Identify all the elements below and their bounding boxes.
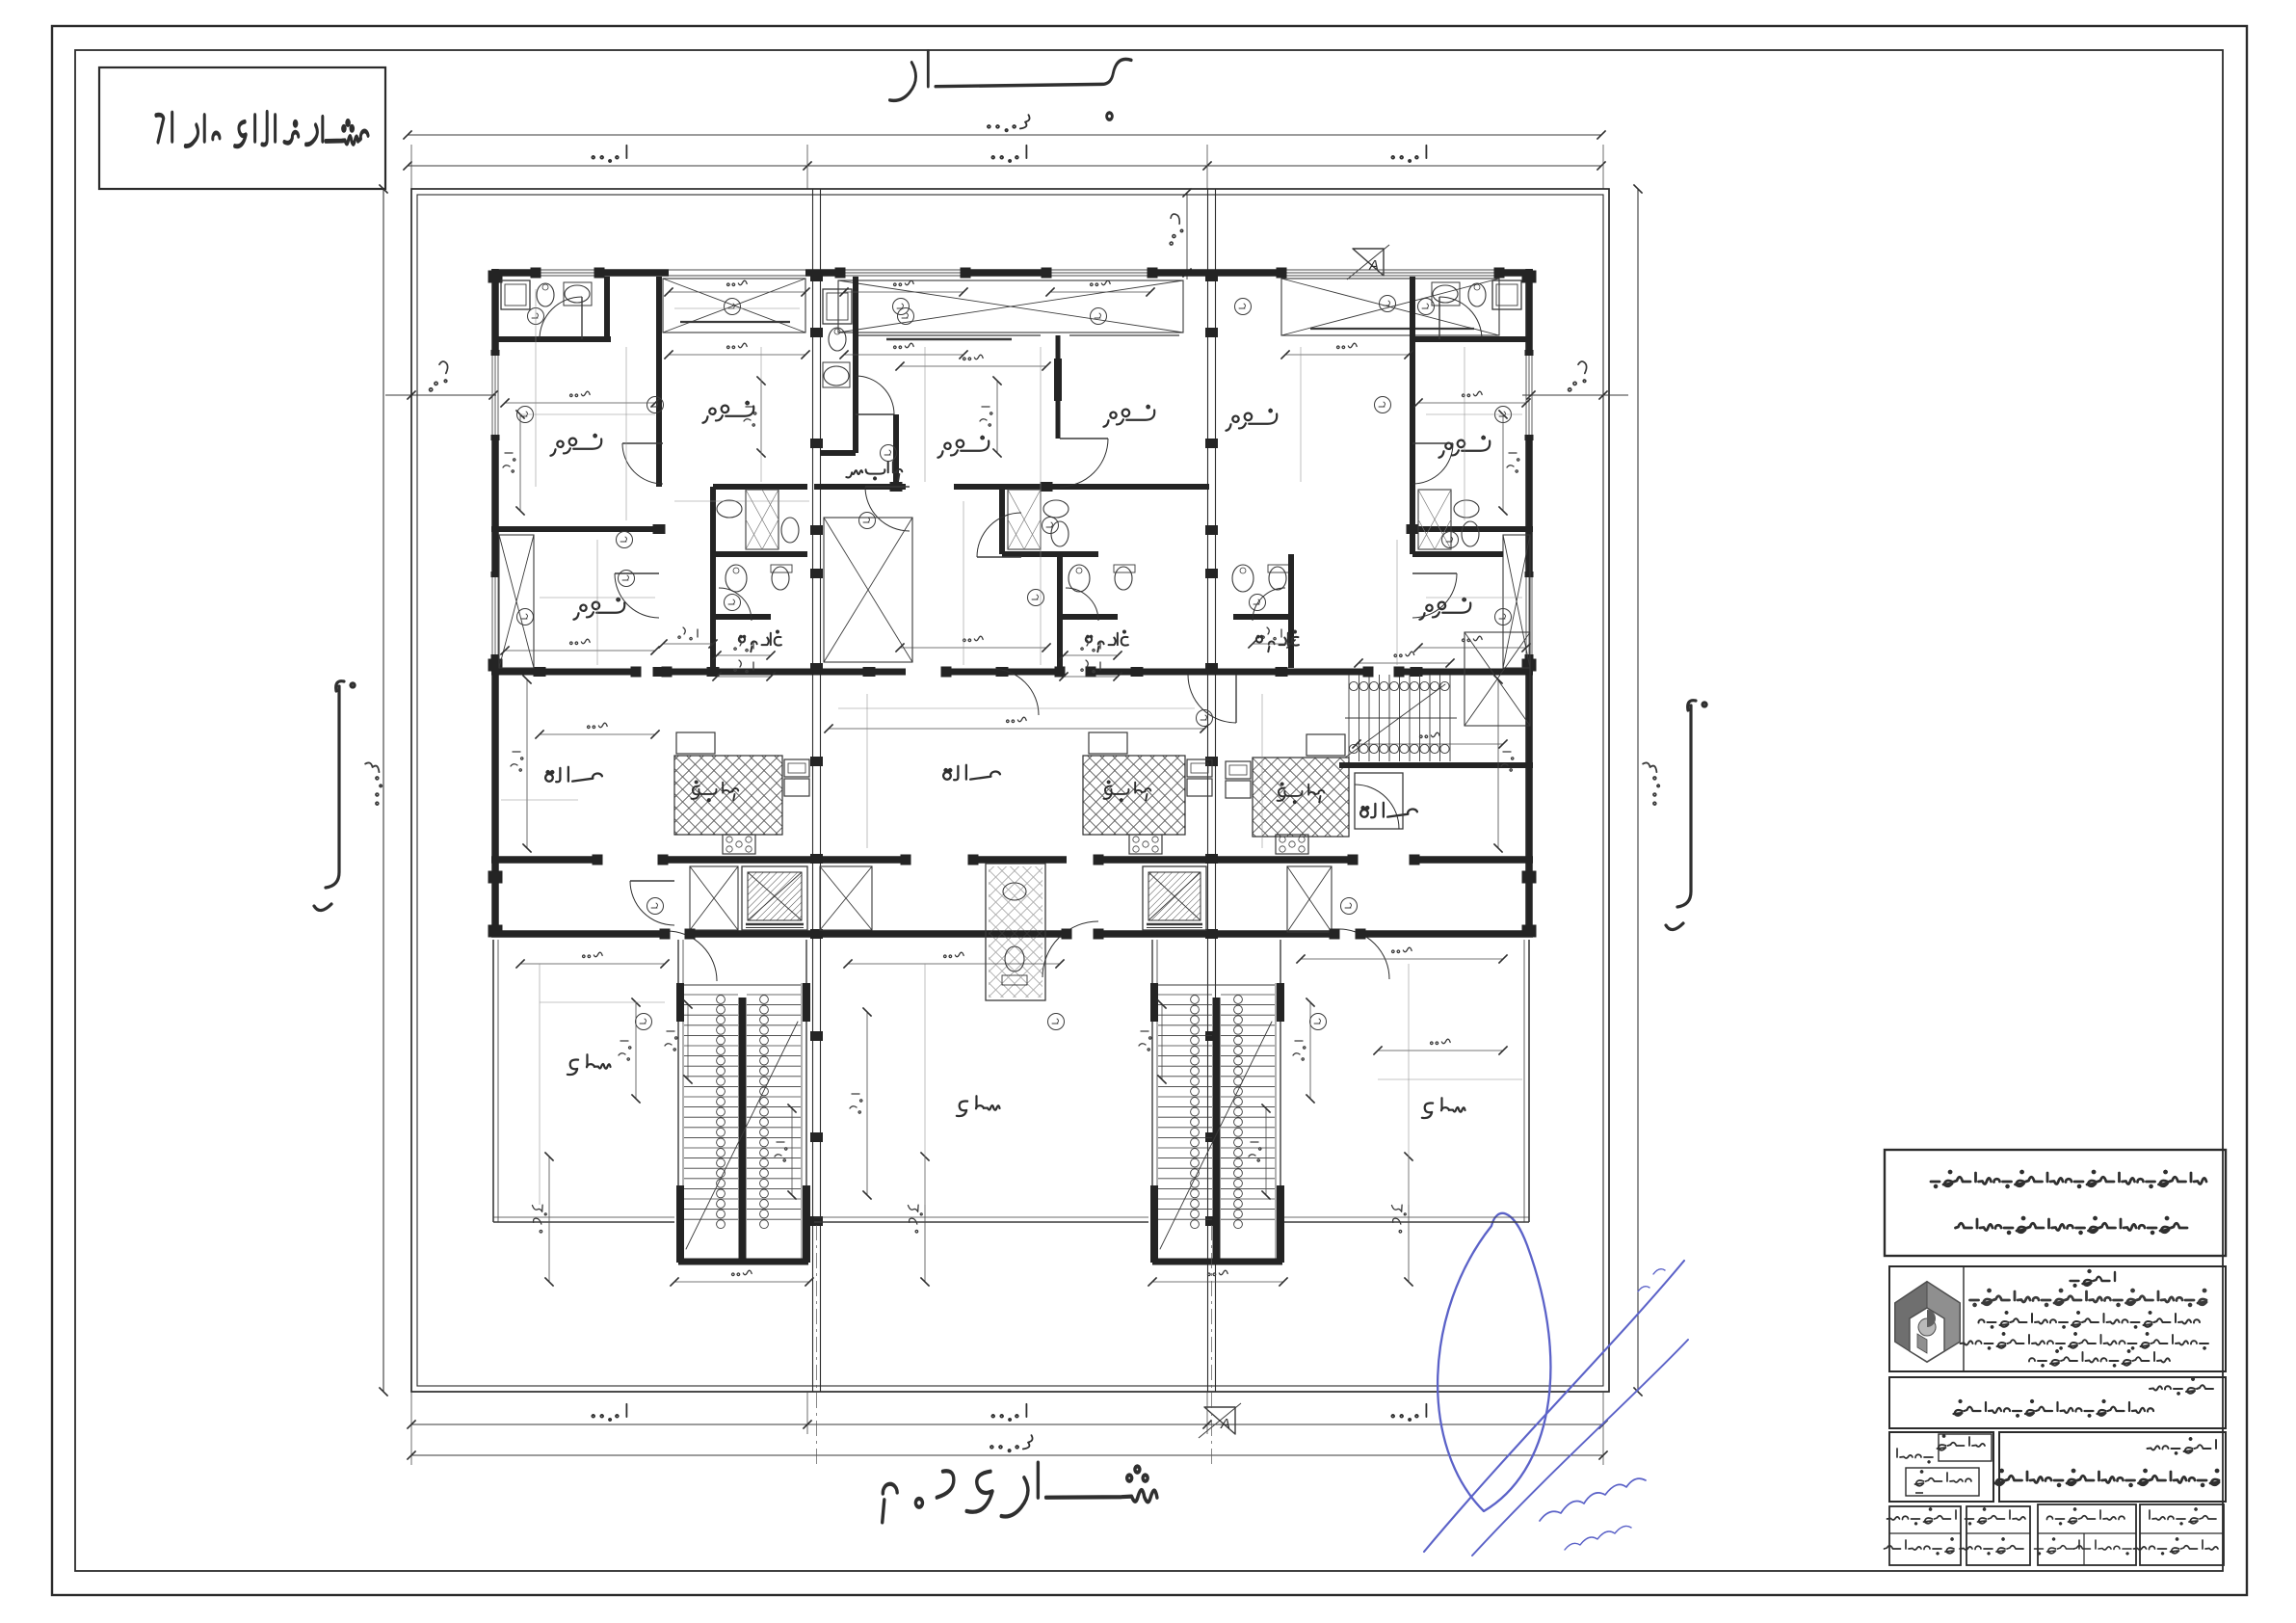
svg-text:A: A [1368,257,1379,274]
